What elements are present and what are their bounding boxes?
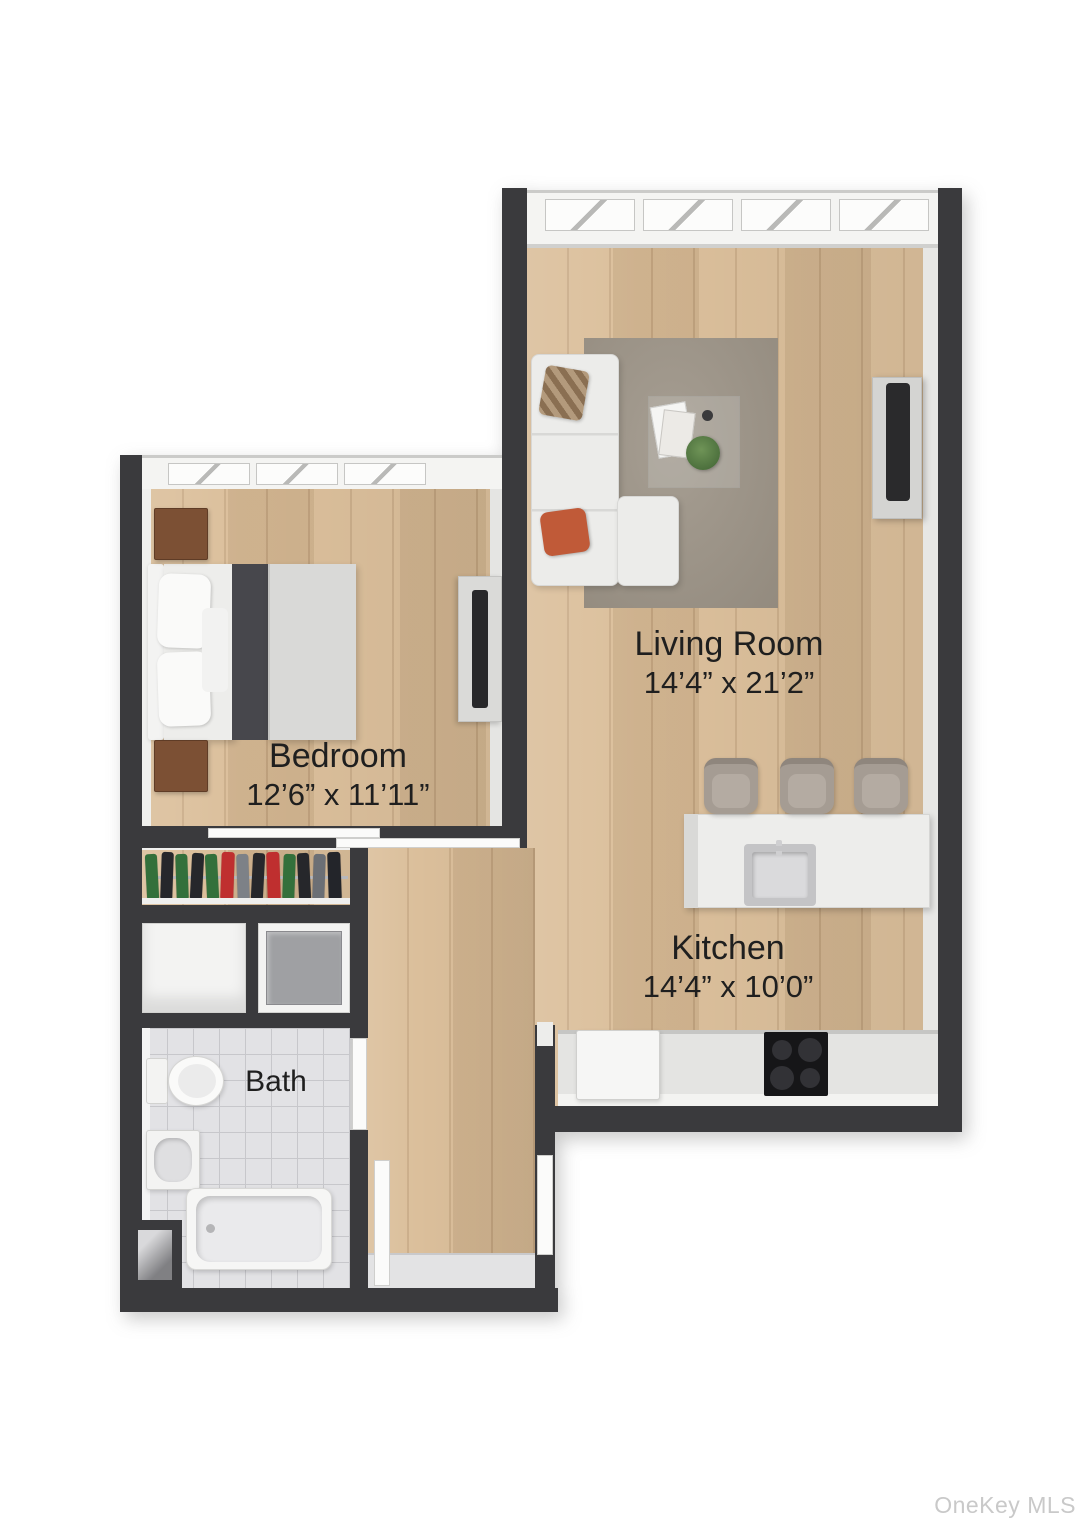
burner — [770, 1066, 794, 1090]
closet-rack — [146, 852, 348, 904]
hanging-clothes — [312, 854, 326, 900]
window-pane — [741, 199, 831, 231]
stool-seat — [862, 774, 900, 808]
room-name: Living Room — [599, 624, 859, 664]
patterned-pillow — [538, 365, 590, 422]
wall-kitchen-bottom — [553, 1106, 962, 1132]
bath-sink-basin — [154, 1138, 192, 1182]
wall-living-top-left-post — [502, 188, 527, 480]
bedroom-sliding-door — [336, 838, 520, 848]
bedroom-tv — [472, 590, 488, 708]
room-dimensions: 14’4” x 10’0” — [603, 968, 853, 1006]
living-room-label: Living Room 14’4” x 21’2” — [599, 624, 859, 702]
bed-center-cushion — [202, 608, 228, 692]
entry-door — [537, 1155, 553, 1255]
hall-door — [374, 1160, 390, 1286]
hanging-clothes — [175, 854, 189, 900]
hanging-clothes — [282, 854, 296, 900]
bedroom-label: Bedroom 12’6” x 11’11” — [213, 736, 463, 814]
nightstand — [154, 508, 208, 560]
wall-closet-bottom — [120, 905, 367, 923]
window-pane — [643, 199, 733, 231]
bath-door — [352, 1038, 367, 1130]
sectional-sofa-chaise — [617, 496, 679, 586]
storage-unit — [266, 931, 342, 1005]
bedroom-window-wall — [142, 455, 502, 489]
hanging-clothes — [160, 852, 174, 900]
burner — [798, 1038, 822, 1062]
wall-left — [120, 455, 142, 1312]
stool-seat — [788, 774, 826, 808]
floor-plan-page: Living Room 14’4” x 21’2” Bedroom 12’6” … — [0, 0, 1086, 1536]
wall-living-right — [938, 188, 962, 1132]
burner — [772, 1040, 792, 1060]
hallway-floor — [367, 848, 535, 1288]
wall-bath-right — [350, 1130, 368, 1288]
toilet-tank — [146, 1058, 168, 1104]
kitchen-label: Kitchen 14’4” x 10’0” — [603, 928, 853, 1006]
hanging-clothes — [327, 852, 342, 900]
bar-stool — [854, 758, 908, 814]
hanging-clothes — [236, 854, 250, 900]
window-pane — [545, 199, 635, 231]
stool-seat — [712, 774, 750, 808]
window-pane — [168, 463, 250, 485]
plant — [686, 436, 720, 470]
hanging-clothes — [297, 853, 311, 901]
island-sink-basin — [752, 852, 808, 898]
burner — [800, 1068, 820, 1088]
watermark: OneKey MLS — [934, 1492, 1076, 1519]
kitchen-appliance — [576, 1030, 660, 1100]
toilet-seat — [178, 1064, 216, 1098]
storage-closet — [142, 923, 246, 1013]
wall-bath-top — [120, 1013, 367, 1028]
room-name: Bath — [226, 1062, 326, 1102]
wall-bedroom-living-shared — [502, 476, 527, 830]
window-pane — [839, 199, 929, 231]
floor-plan: Living Room 14’4” x 21’2” Bedroom 12’6” … — [0, 0, 1086, 1536]
bar-stool — [704, 758, 758, 814]
island-faucet-handle — [769, 846, 789, 851]
wall-entry-stub-cap — [537, 1022, 553, 1046]
window-pane — [256, 463, 338, 485]
room-dimensions: 12’6” x 11’11” — [213, 776, 463, 814]
wall-closet-right — [350, 848, 368, 1038]
bath-label: Bath — [226, 1062, 326, 1102]
entry-landing — [368, 1253, 535, 1288]
bed-blanket — [232, 564, 268, 740]
bedroom-sliding-door — [208, 828, 380, 838]
hanging-clothes — [205, 854, 219, 901]
nook-interior — [138, 1230, 172, 1280]
window-sill — [527, 244, 938, 248]
bar-stool — [780, 758, 834, 814]
hanging-clothes — [251, 853, 265, 901]
bed-duvet — [268, 564, 356, 740]
room-name: Bedroom — [213, 736, 463, 776]
living-room-right-wall-face — [923, 245, 938, 1106]
hanging-clothes — [145, 854, 159, 901]
closet-shelf-bottom — [142, 898, 352, 904]
teacup — [702, 410, 713, 421]
cooktop — [764, 1032, 828, 1096]
hanging-clothes — [190, 853, 204, 901]
bathtub-drain — [206, 1224, 215, 1233]
room-dimensions: 14’4” x 21’2” — [599, 664, 859, 702]
wall-storage-divider — [246, 923, 258, 1013]
hanging-clothes — [266, 852, 281, 900]
kitchen-island-edge — [684, 814, 698, 908]
living-room-tv — [886, 383, 910, 501]
hanging-clothes — [220, 852, 235, 900]
nightstand — [154, 740, 208, 792]
living-room-window-wall — [527, 190, 938, 245]
wall-bottom — [120, 1288, 558, 1312]
accent-pillow — [539, 507, 591, 557]
window-pane — [344, 463, 426, 485]
room-name: Kitchen — [603, 928, 853, 968]
